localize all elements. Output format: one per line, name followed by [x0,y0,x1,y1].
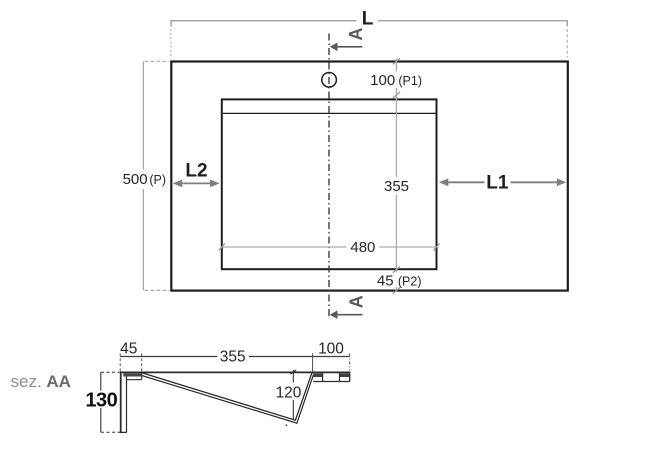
svg-text:L2: L2 [185,160,207,181]
svg-text:L: L [362,9,374,30]
svg-text:(P1): (P1) [398,74,422,88]
svg-text:480: 480 [350,239,375,256]
svg-text:45: 45 [120,341,137,358]
svg-text:L1: L1 [486,172,509,193]
svg-text:355: 355 [384,178,409,195]
svg-text:130: 130 [85,389,117,411]
svg-text:A: A [346,295,366,308]
svg-text:(P): (P) [149,173,166,187]
svg-text:100: 100 [318,341,344,358]
svg-text:500: 500 [123,171,148,188]
svg-text:sez. AA: sez. AA [11,372,71,391]
svg-text:100: 100 [370,72,395,89]
svg-text:45: 45 [377,273,394,290]
svg-text:355: 355 [220,349,246,366]
svg-text:120: 120 [276,384,302,401]
svg-text:(P2): (P2) [398,275,422,289]
